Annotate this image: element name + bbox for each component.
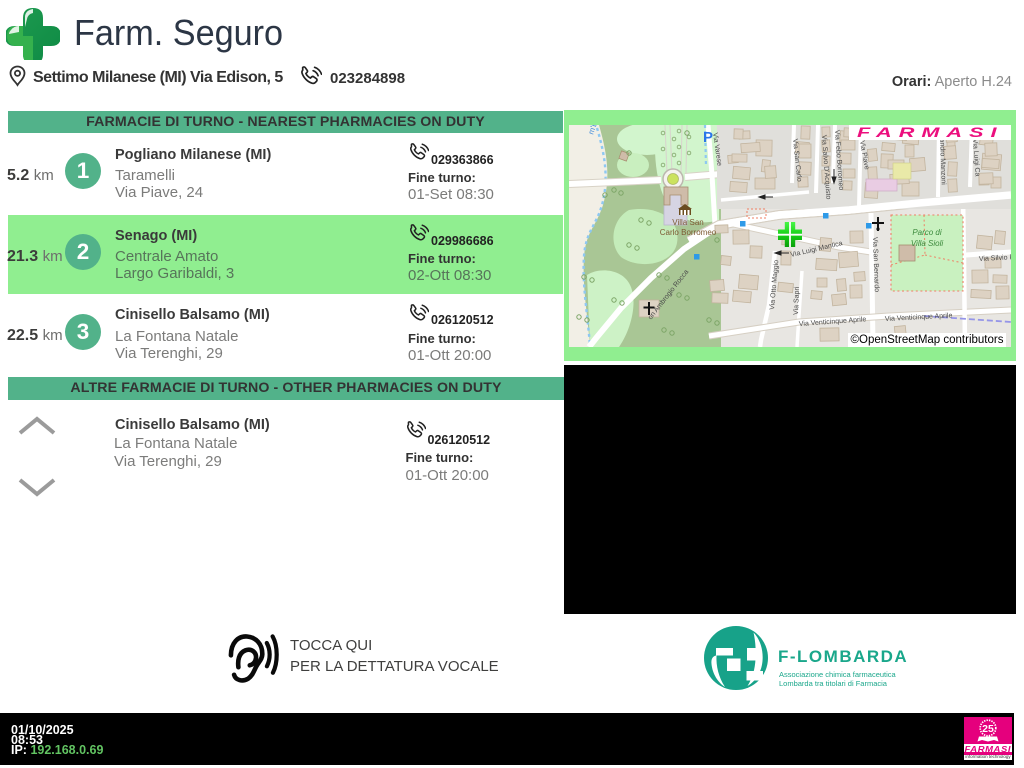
svg-text:Parco di: Parco di (912, 228, 942, 237)
svg-text:P: P (703, 129, 713, 146)
svg-text:Villa Sioli: Villa Sioli (911, 239, 944, 248)
svg-text:Carlo Borromeo: Carlo Borromeo (660, 228, 717, 237)
svg-text:Via Sapri: Via Sapri (793, 286, 801, 315)
svg-text:25: 25 (982, 723, 994, 735)
svg-text:Villa San: Villa San (672, 218, 703, 227)
